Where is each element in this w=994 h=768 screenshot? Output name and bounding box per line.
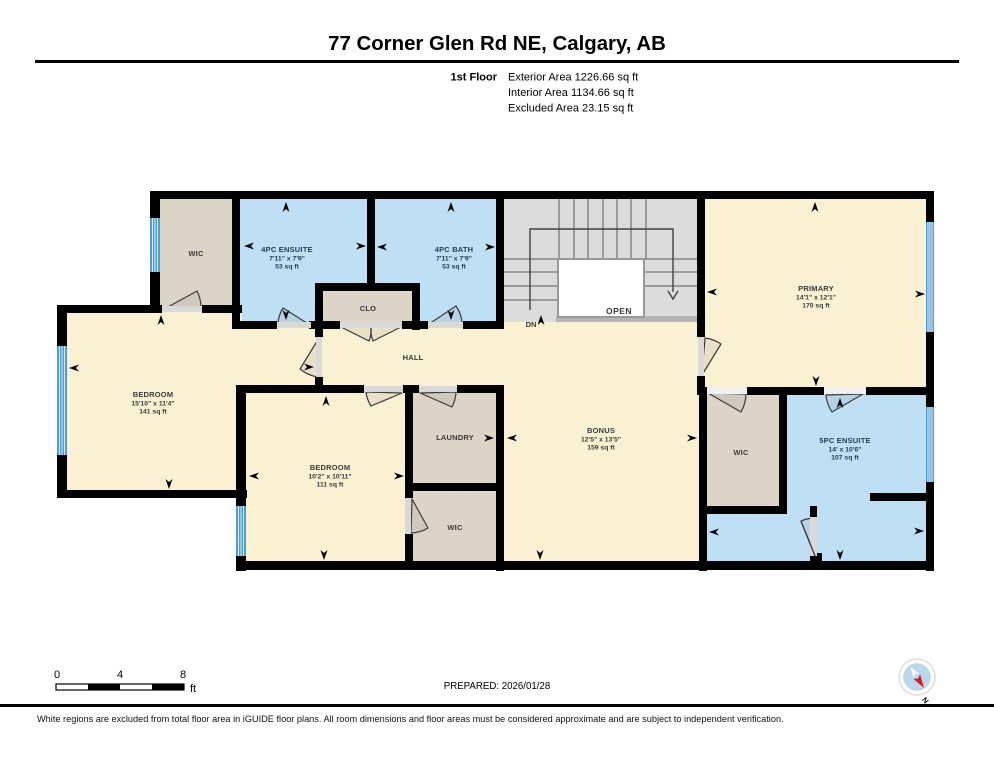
svg-text:N: N (920, 695, 930, 705)
svg-text:BEDROOM: BEDROOM (310, 463, 351, 472)
svg-text:4PC BATH: 4PC BATH (435, 245, 474, 254)
svg-text:14'1" x 12'1": 14'1" x 12'1" (796, 294, 836, 301)
svg-text:7'11" x 7'9": 7'11" x 7'9" (269, 255, 305, 262)
svg-text:15'10" x 11'4": 15'10" x 11'4" (131, 400, 174, 407)
svg-text:White regions are excluded fro: White regions are excluded from total fl… (37, 714, 784, 724)
svg-text:WIC: WIC (733, 448, 749, 457)
svg-text:Excluded Area 23.15 sq ft: Excluded Area 23.15 sq ft (508, 103, 633, 115)
svg-text:Interior Area 1134.66 sq ft: Interior Area 1134.66 sq ft (508, 87, 634, 99)
svg-text:ft: ft (190, 683, 196, 695)
svg-text:107 sq ft: 107 sq ft (831, 455, 859, 462)
svg-text:PRIMARY: PRIMARY (798, 284, 834, 293)
svg-text:0: 0 (54, 669, 60, 681)
svg-text:4: 4 (117, 669, 123, 681)
svg-text:PREPARED: 2026/01/28: PREPARED: 2026/01/28 (444, 681, 550, 692)
svg-text:7'11" x 7'9": 7'11" x 7'9" (436, 255, 472, 262)
svg-text:1st Floor: 1st Floor (451, 72, 498, 84)
svg-text:BEDROOM: BEDROOM (133, 390, 174, 399)
svg-text:10'2" x 10'11": 10'2" x 10'11" (308, 473, 351, 480)
svg-text:HALL: HALL (403, 353, 424, 362)
svg-text:12'5" x 13'5": 12'5" x 13'5" (581, 436, 621, 443)
svg-text:LAUNDRY: LAUNDRY (436, 433, 474, 442)
svg-text:OPEN: OPEN (606, 306, 632, 316)
svg-text:DN: DN (526, 320, 537, 329)
svg-text:4PC ENSUITE: 4PC ENSUITE (261, 245, 312, 254)
svg-text:170 sq ft: 170 sq ft (802, 303, 830, 310)
svg-text:14' x 10'6": 14' x 10'6" (829, 446, 862, 453)
svg-text:CLO: CLO (360, 304, 376, 313)
svg-text:WIC: WIC (188, 249, 204, 258)
svg-text:WIC: WIC (447, 523, 463, 532)
svg-text:53 sq ft: 53 sq ft (275, 264, 300, 271)
svg-text:111 sq ft: 111 sq ft (317, 482, 345, 489)
svg-text:Exterior Area 1226.66 sq ft: Exterior Area 1226.66 sq ft (508, 72, 638, 84)
svg-text:159 sq ft: 159 sq ft (587, 445, 615, 452)
svg-text:141 sq ft: 141 sq ft (139, 409, 167, 416)
svg-text:8: 8 (180, 669, 186, 681)
svg-text:5PC ENSUITE: 5PC ENSUITE (819, 436, 870, 445)
svg-text:77 Corner Glen Rd NE, Calgary,: 77 Corner Glen Rd NE, Calgary, AB (328, 33, 666, 55)
svg-text:53 sq ft: 53 sq ft (442, 264, 467, 271)
svg-text:BONUS: BONUS (587, 426, 615, 435)
